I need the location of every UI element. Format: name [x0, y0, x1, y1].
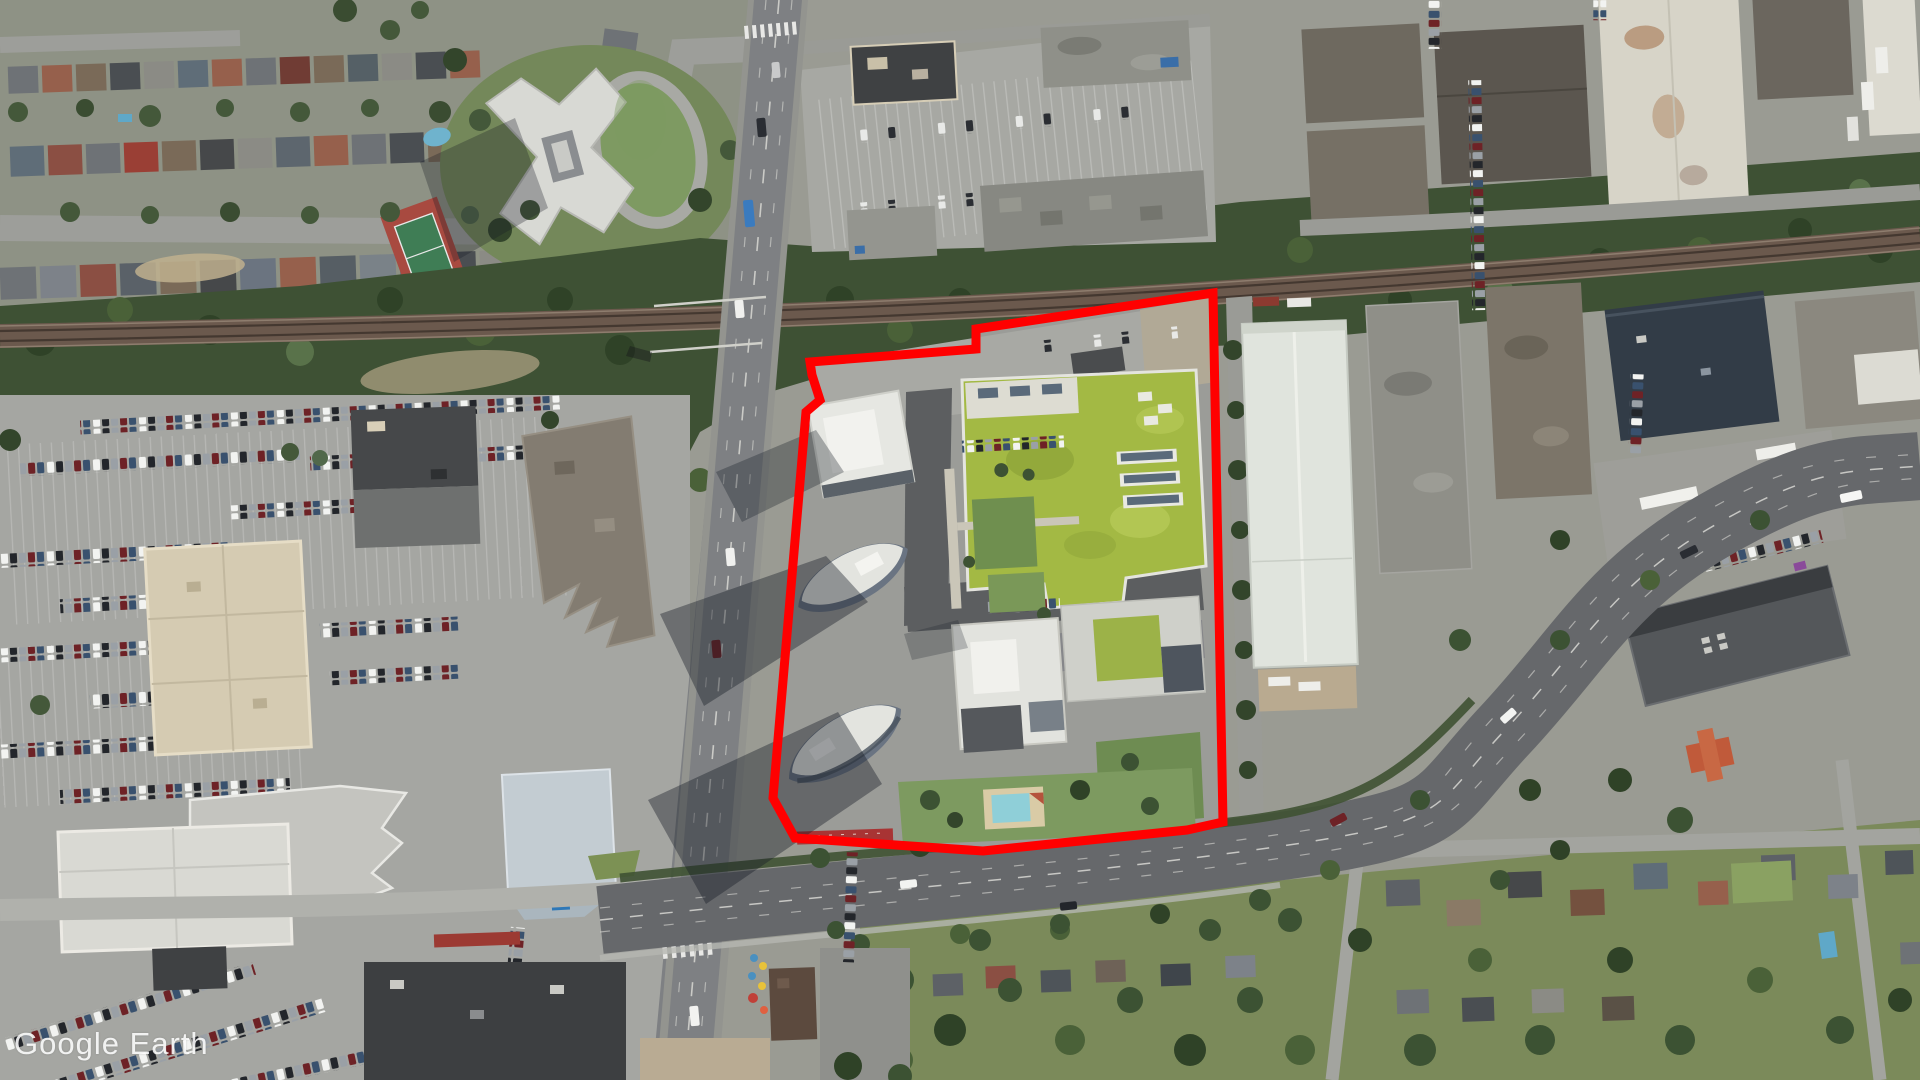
restaurant-building	[769, 967, 817, 1041]
small-building-north	[847, 206, 937, 261]
skylight-bars	[1116, 448, 1183, 508]
plaza-southwest	[0, 395, 690, 1080]
white-warehouse	[1241, 294, 1359, 711]
dark-warehouse-south	[364, 962, 626, 1080]
google-earth-watermark: Google Earth	[14, 1026, 209, 1062]
charcoal-building	[851, 41, 958, 104]
charcoal-plaza-building	[351, 406, 481, 548]
gray-building-north	[1041, 20, 1192, 88]
playground	[983, 786, 1045, 829]
satellite-canvas[interactable]	[0, 0, 1920, 1080]
green-roof-building	[962, 370, 1206, 608]
beige-bigbox-building	[145, 541, 312, 755]
google-earth-viewport[interactable]: Google Earth	[0, 0, 1920, 1080]
